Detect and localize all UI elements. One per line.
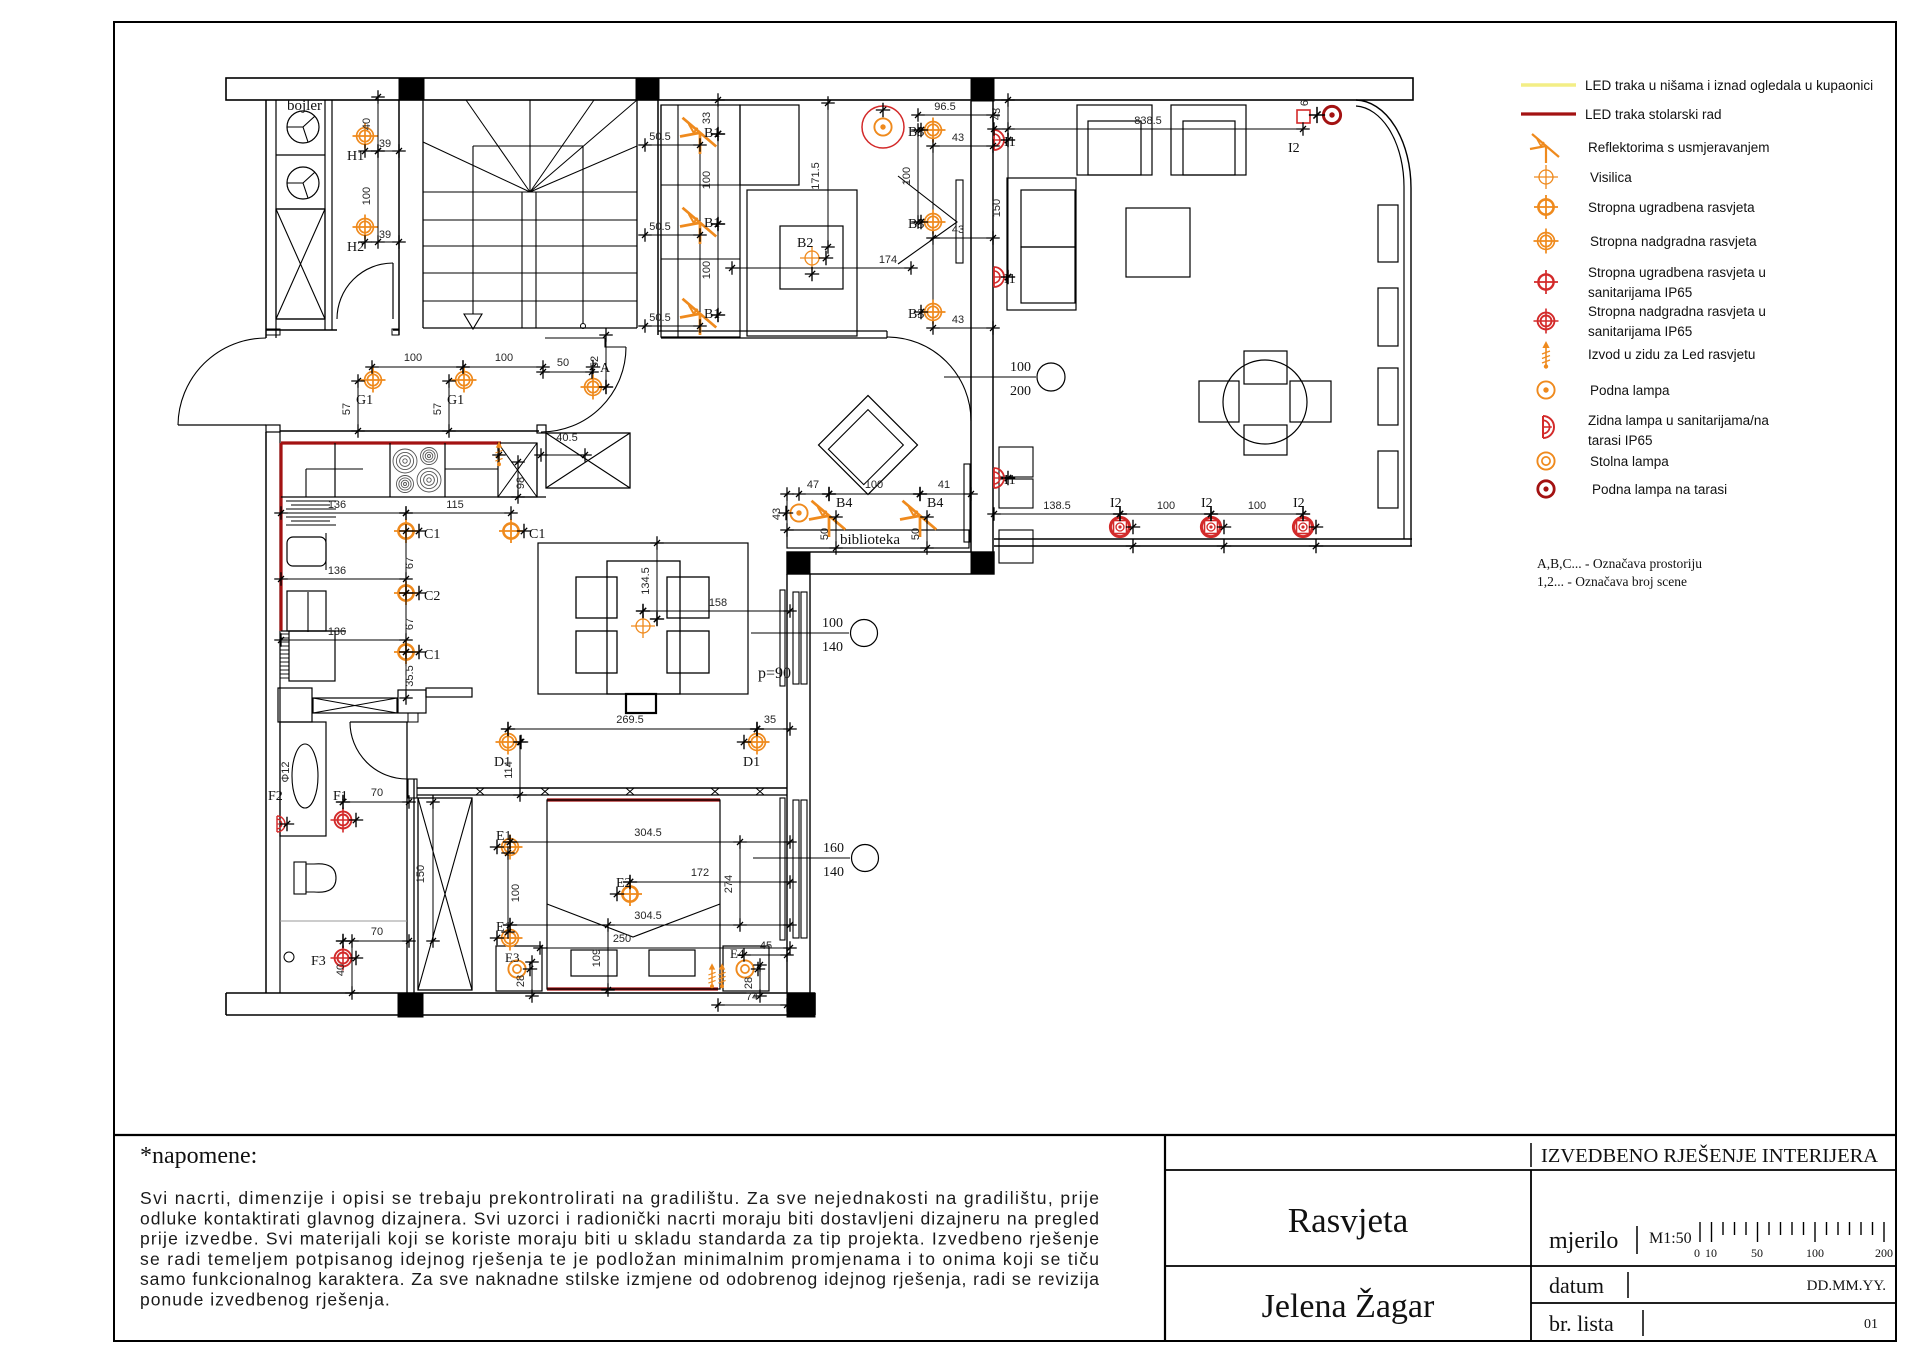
svg-text:F2: F2 <box>268 789 283 804</box>
svg-text:B2: B2 <box>797 236 813 251</box>
svg-text:Stropna ugradbena rasvjeta u: Stropna ugradbena rasvjeta u <box>1588 265 1766 280</box>
svg-text:M1:50: M1:50 <box>1649 1230 1692 1247</box>
svg-text:LED traka u nišama i iznad ogl: LED traka u nišama i iznad ogledala u ku… <box>1585 78 1873 93</box>
svg-text:28: 28 <box>515 975 527 987</box>
svg-text:140: 140 <box>822 640 843 655</box>
svg-text:Rasvjeta: Rasvjeta <box>1288 1201 1409 1240</box>
svg-text:Φ12: Φ12 <box>280 761 292 782</box>
svg-text:47: 47 <box>807 479 819 491</box>
svg-text:43: 43 <box>952 224 964 236</box>
svg-text:100: 100 <box>1806 1246 1824 1260</box>
svg-text:100: 100 <box>822 616 843 631</box>
svg-text:269.5: 269.5 <box>616 714 644 726</box>
svg-text:158: 158 <box>709 597 727 609</box>
svg-text:174: 174 <box>879 254 897 266</box>
svg-text:100: 100 <box>1157 500 1175 512</box>
svg-text:I2: I2 <box>1288 141 1300 156</box>
svg-text:samo funkcionalnog karaktera.: samo funkcionalnog karaktera. Za sve nak… <box>140 1269 1100 1289</box>
svg-text:Podna lampa na tarasi: Podna lampa na tarasi <box>1592 482 1727 497</box>
svg-text:B4: B4 <box>927 496 943 511</box>
svg-text:6: 6 <box>1299 100 1311 106</box>
svg-text:57: 57 <box>432 403 444 415</box>
svg-text:274: 274 <box>723 875 735 893</box>
svg-text:se radi temeljem potpisanog id: se radi temeljem potpisanog idejnog rješ… <box>140 1249 1100 1269</box>
svg-text:ponude izvedbenog rješenja.: ponude izvedbenog rješenja. <box>140 1290 391 1310</box>
svg-text:134.5: 134.5 <box>640 567 652 595</box>
svg-text:33: 33 <box>701 112 713 124</box>
svg-text:sanitarijama IP65: sanitarijama IP65 <box>1588 324 1692 339</box>
svg-text:C1: C1 <box>424 527 440 542</box>
svg-text:odluke kontaktirati glavnog di: odluke kontaktirati glavnog dizajnera. S… <box>140 1208 1100 1228</box>
svg-text:150: 150 <box>991 199 1003 217</box>
svg-text:838.5: 838.5 <box>1134 115 1162 127</box>
svg-text:67: 67 <box>404 618 416 630</box>
svg-text:45: 45 <box>760 940 772 952</box>
svg-text:100: 100 <box>701 261 713 279</box>
svg-text:D1: D1 <box>743 755 760 770</box>
svg-text:52: 52 <box>589 356 601 368</box>
svg-text:1,2... - Označava broj sc: 1,2... - Označava broj scene <box>1537 574 1687 589</box>
svg-text:39: 39 <box>379 138 391 150</box>
svg-text:115: 115 <box>446 499 464 511</box>
svg-text:138.5: 138.5 <box>1043 500 1071 512</box>
svg-text:304.5: 304.5 <box>634 827 662 839</box>
svg-text:98: 98 <box>515 477 527 489</box>
svg-text:br. lista: br. lista <box>1549 1311 1614 1336</box>
svg-text:Stropna nadgradna rasvjeta: Stropna nadgradna rasvjeta <box>1590 234 1757 249</box>
svg-text:40: 40 <box>335 964 347 976</box>
svg-text:43: 43 <box>952 132 964 144</box>
svg-text:50.5: 50.5 <box>649 221 670 233</box>
svg-text:p=90: p=90 <box>758 665 791 682</box>
svg-text:43: 43 <box>952 314 964 326</box>
svg-text:A,B,C... - Označava prostoriju: A,B,C... - Označava prostoriju <box>1537 556 1702 571</box>
svg-text:Stropna nadgradna rasvjeta u: Stropna nadgradna rasvjeta u <box>1588 304 1766 319</box>
svg-text:B4: B4 <box>836 496 852 511</box>
svg-text:50: 50 <box>910 528 922 540</box>
svg-text:70: 70 <box>371 926 383 938</box>
svg-text:Reflektorima s usmjeravanjem: Reflektorima s usmjeravanjem <box>1588 140 1770 155</box>
svg-text:Podna lampa: Podna lampa <box>1590 383 1670 398</box>
svg-text:74: 74 <box>746 991 758 1003</box>
svg-text:biblioteka: biblioteka <box>840 532 900 548</box>
svg-text:35: 35 <box>764 714 776 726</box>
svg-text:IZVEDBENO RJEŠENJE INTERIJERA: IZVEDBENO RJEŠENJE INTERIJERA <box>1541 1143 1878 1167</box>
svg-text:Izvod u zidu za Led rasvjetu: Izvod u zidu za Led rasvjetu <box>1588 347 1755 362</box>
svg-text:100: 100 <box>865 479 883 491</box>
svg-text:40: 40 <box>361 118 373 130</box>
svg-text:50: 50 <box>1751 1246 1763 1260</box>
svg-text:150: 150 <box>415 865 427 883</box>
svg-text:171.5: 171.5 <box>810 162 822 190</box>
svg-text:Jelena Žagar: Jelena Žagar <box>1262 1288 1435 1325</box>
svg-text:100: 100 <box>1010 360 1031 375</box>
svg-text:C1: C1 <box>424 648 440 663</box>
svg-text:40.5: 40.5 <box>556 432 577 444</box>
svg-text:G1: G1 <box>356 393 373 408</box>
svg-text:01: 01 <box>1864 1317 1878 1332</box>
svg-text:136: 136 <box>328 565 346 577</box>
svg-text:136: 136 <box>328 626 346 638</box>
svg-text:57: 57 <box>341 403 353 415</box>
svg-text:F3: F3 <box>311 954 326 969</box>
svg-text:Stolna lampa: Stolna lampa <box>1590 454 1669 469</box>
svg-text:96.5: 96.5 <box>934 101 955 113</box>
svg-text:Zidna lampa u sanitarijama/na: Zidna lampa u sanitarijama/na <box>1588 413 1769 428</box>
svg-text:C1: C1 <box>529 527 545 542</box>
svg-text:100: 100 <box>1248 500 1266 512</box>
svg-text:200: 200 <box>1010 384 1031 399</box>
svg-text:70: 70 <box>371 787 383 799</box>
svg-text:109: 109 <box>591 949 603 967</box>
svg-text:tarasi IP65: tarasi IP65 <box>1588 433 1653 448</box>
svg-text:43: 43 <box>991 108 1003 120</box>
svg-text:100: 100 <box>495 352 513 364</box>
svg-text:mjerilo: mjerilo <box>1549 1228 1618 1254</box>
svg-text:160: 160 <box>823 841 844 856</box>
svg-text:G1: G1 <box>447 393 464 408</box>
svg-text:prije izvedbe. Svi materijali: prije izvedbe. Svi materijali koji se ko… <box>140 1229 1100 1249</box>
svg-text:Stropna ugradbena rasvjeta: Stropna ugradbena rasvjeta <box>1588 200 1755 215</box>
svg-text:bojler: bojler <box>287 98 322 114</box>
svg-text:*napomene:: *napomene: <box>140 1143 257 1169</box>
svg-text:DD.MM.YY.: DD.MM.YY. <box>1807 1278 1886 1294</box>
svg-text:datum: datum <box>1549 1273 1604 1298</box>
svg-text:B3: B3 <box>908 307 924 322</box>
svg-text:39: 39 <box>379 229 391 241</box>
svg-text:100: 100 <box>901 167 913 185</box>
svg-text:10: 10 <box>1705 1246 1717 1260</box>
svg-text:67: 67 <box>404 557 416 569</box>
svg-text:304.5: 304.5 <box>634 910 662 922</box>
svg-text:sanitarijama IP65: sanitarijama IP65 <box>1588 285 1692 300</box>
svg-text:50.5: 50.5 <box>649 312 670 324</box>
svg-text:250: 250 <box>613 933 631 945</box>
svg-text:50: 50 <box>557 357 569 369</box>
svg-text:E3: E3 <box>505 950 519 965</box>
svg-text:140: 140 <box>823 865 844 880</box>
svg-text:100: 100 <box>510 884 522 902</box>
svg-text:43: 43 <box>771 508 783 520</box>
svg-text:114: 114 <box>503 761 515 779</box>
svg-text:136: 136 <box>328 499 346 511</box>
svg-text:50.5: 50.5 <box>649 131 670 143</box>
svg-text:E1: E1 <box>496 920 512 935</box>
svg-text:200: 200 <box>1875 1246 1893 1260</box>
svg-text:172: 172 <box>691 867 709 879</box>
svg-text:100: 100 <box>701 171 713 189</box>
svg-text:35.5: 35.5 <box>404 665 416 686</box>
svg-text:100: 100 <box>404 352 422 364</box>
svg-text:Svi nacrti, dimenzije i opisi: Svi nacrti, dimenzije i opisi se trebaju… <box>140 1188 1100 1208</box>
svg-text:Visilica: Visilica <box>1590 170 1632 185</box>
svg-text:0: 0 <box>1694 1246 1700 1260</box>
svg-text:41: 41 <box>938 479 950 491</box>
svg-text:28: 28 <box>743 977 755 989</box>
svg-text:50: 50 <box>819 528 831 540</box>
svg-text:LED traka stolarski rad: LED traka stolarski rad <box>1585 107 1722 122</box>
svg-text:C2: C2 <box>424 589 440 604</box>
svg-text:100: 100 <box>361 187 373 205</box>
